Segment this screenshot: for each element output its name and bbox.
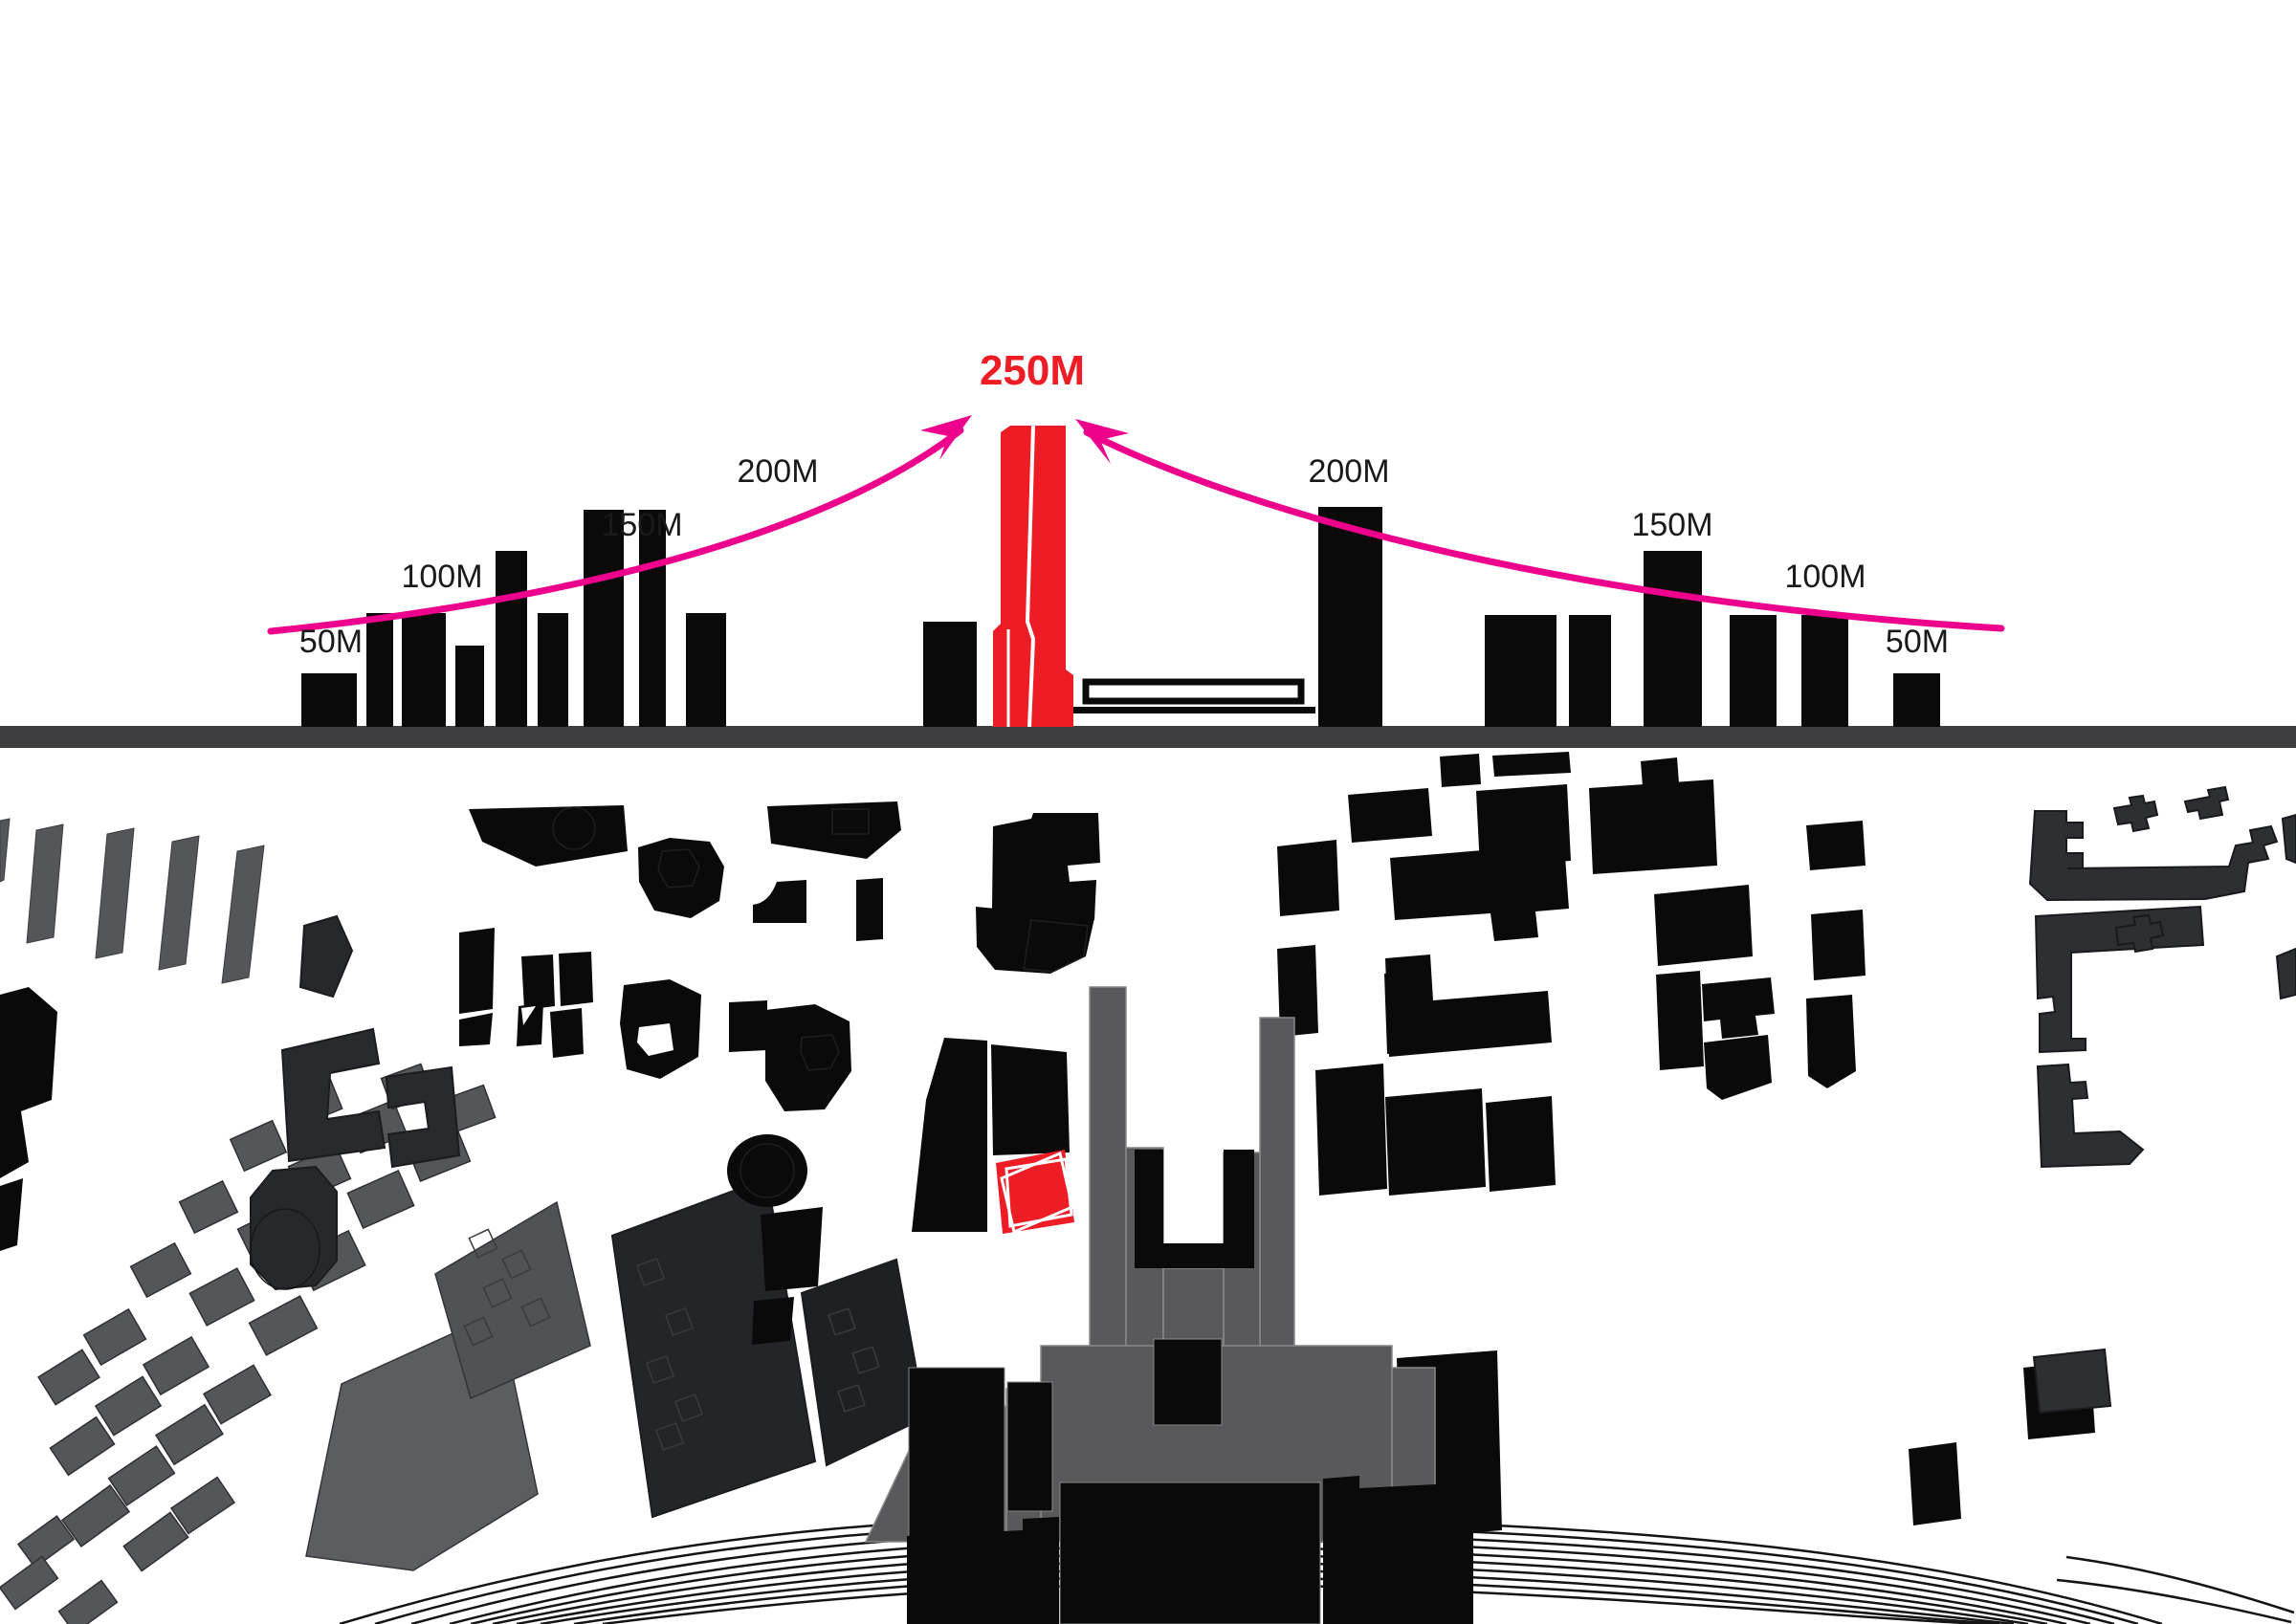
black-building-footprint bbox=[765, 1004, 851, 1111]
black-building-footprint bbox=[753, 880, 806, 923]
fan-house-block bbox=[84, 1309, 146, 1365]
skyline-building bbox=[686, 613, 726, 727]
black-building-footprint bbox=[752, 1297, 794, 1345]
fan-house-block bbox=[204, 1365, 271, 1423]
crenellated-perimeter-block bbox=[2038, 1064, 2143, 1167]
gray-bar-building bbox=[0, 819, 10, 882]
skyline-elevation-layer bbox=[301, 426, 1940, 727]
plaza-gray-surface bbox=[1260, 1018, 1294, 1360]
height-label-100m: 100M bbox=[401, 559, 482, 595]
black-building-footprint bbox=[1806, 821, 1865, 870]
black-building-footprint bbox=[992, 813, 1100, 920]
black-building-footprint bbox=[459, 928, 495, 1014]
black-building-footprint bbox=[1277, 840, 1339, 916]
crenellated-perimeter-block bbox=[2030, 811, 2277, 900]
height-label-150m: 150M bbox=[601, 507, 682, 543]
red-site-parcel-layer bbox=[996, 1150, 1074, 1234]
black-building-footprint bbox=[550, 1008, 584, 1058]
station-black-building bbox=[1323, 1476, 1473, 1624]
fan-house-block bbox=[250, 1296, 318, 1355]
fan-house-block bbox=[156, 1405, 223, 1464]
skyline-building bbox=[496, 551, 527, 727]
gray-bar-building bbox=[159, 836, 199, 970]
height-label-200m: 200M bbox=[737, 453, 818, 490]
crenellated-perimeter-block bbox=[2185, 787, 2228, 819]
skyline-building bbox=[1730, 615, 1777, 727]
black-building-footprint bbox=[912, 1038, 987, 1232]
black-building-footprint bbox=[469, 805, 628, 867]
station-black-building bbox=[1060, 1482, 1320, 1624]
black-building-footprint bbox=[1348, 788, 1432, 843]
fan-house-block bbox=[38, 1350, 99, 1404]
black-building-footprint bbox=[976, 907, 1094, 974]
black-building-footprint bbox=[1390, 844, 1569, 941]
skyline-building bbox=[1569, 615, 1611, 727]
fan-house-block bbox=[189, 1268, 254, 1326]
black-building-footprint bbox=[1589, 779, 1717, 874]
black-building-footprint bbox=[1704, 1035, 1772, 1100]
height-label-200m: 200M bbox=[1308, 453, 1389, 490]
ground-line bbox=[0, 726, 2296, 748]
black-building-footprint bbox=[991, 1044, 1070, 1155]
black-building-footprint bbox=[0, 987, 57, 1178]
black-round-building bbox=[727, 1134, 807, 1207]
black-building-footprint bbox=[1486, 1096, 1556, 1192]
black-building-footprint bbox=[559, 952, 593, 1006]
fan-house-block bbox=[231, 1121, 286, 1171]
skyline-building bbox=[923, 622, 977, 727]
skyline-building bbox=[455, 646, 484, 727]
crenellated-perimeter-block bbox=[2034, 1350, 2110, 1413]
fan-house-block bbox=[171, 1478, 234, 1534]
gray-bar-building bbox=[222, 845, 264, 983]
black-building-footprint bbox=[1909, 1442, 1961, 1525]
skyline-building bbox=[1893, 673, 1940, 727]
black-building-footprint bbox=[767, 801, 901, 859]
fan-house-block bbox=[123, 1512, 188, 1570]
fan-house-block bbox=[180, 1181, 238, 1233]
black-building-footprint bbox=[459, 1013, 493, 1046]
fan-house-block bbox=[96, 1376, 161, 1435]
skyline-building bbox=[301, 673, 357, 727]
height-label-150m: 150M bbox=[1631, 507, 1712, 543]
fan-house-block bbox=[131, 1243, 191, 1297]
black-building-footprint bbox=[1654, 885, 1753, 966]
low-podium-building bbox=[1086, 682, 1301, 701]
black-building-footprint bbox=[1806, 995, 1856, 1088]
skyline-building bbox=[1485, 615, 1556, 727]
plaza-gray-surface bbox=[1090, 987, 1126, 1360]
fan-house-block bbox=[143, 1337, 209, 1394]
black-building-footprint bbox=[1492, 752, 1571, 777]
gray-bar-building bbox=[96, 828, 134, 958]
skyline-building bbox=[366, 613, 393, 727]
station-black-building bbox=[1135, 1150, 1254, 1268]
black-building-footprint bbox=[0, 1178, 23, 1251]
height-label-50m: 50M bbox=[1886, 624, 1949, 660]
crenellated-perimeter-block bbox=[2283, 815, 2296, 863]
fan-house-block bbox=[0, 1557, 57, 1610]
black-building-footprint bbox=[729, 1000, 767, 1052]
height-label-100m: 100M bbox=[1784, 559, 1865, 595]
city-height-site-diagram: 50M100M150M200M250M200M150M100M50M bbox=[0, 0, 2296, 1624]
charcoal-building bbox=[251, 1167, 337, 1289]
charcoal-building bbox=[802, 1260, 925, 1465]
height-envelope-arrows-layer bbox=[271, 415, 2001, 631]
podium-base-line bbox=[1073, 707, 1315, 713]
crenellated-perimeter-block bbox=[2114, 796, 2157, 831]
fan-house-block bbox=[347, 1171, 413, 1228]
skyline-building bbox=[1644, 551, 1702, 727]
black-building-footprint bbox=[1440, 754, 1481, 787]
height-label-50m: 50M bbox=[299, 624, 363, 660]
gray-bar-building bbox=[27, 824, 63, 943]
skyline-building bbox=[402, 613, 446, 727]
height-envelope-curve-right bbox=[1087, 432, 2001, 628]
crenellated-perimeter-block bbox=[2277, 949, 2296, 999]
fan-house-block bbox=[50, 1417, 114, 1476]
black-building-footprint bbox=[521, 955, 555, 1010]
black-building-footprint bbox=[1315, 1064, 1387, 1196]
height-label-250m: 250M bbox=[980, 347, 1085, 394]
black-building-footprint bbox=[1702, 977, 1775, 1039]
station-black-building bbox=[1154, 1339, 1222, 1425]
station-black-building bbox=[909, 1368, 1004, 1542]
black-building-footprint bbox=[761, 1207, 823, 1291]
black-building-footprint bbox=[856, 878, 883, 941]
skyline-building bbox=[538, 613, 568, 727]
skyline-building bbox=[1318, 507, 1382, 727]
black-building-footprint bbox=[1385, 955, 1552, 1057]
fan-house-block bbox=[59, 1581, 118, 1624]
charcoal-building bbox=[300, 916, 352, 997]
black-building-footprint bbox=[1656, 971, 1704, 1070]
black-building-footprint bbox=[1385, 1088, 1486, 1196]
ground-line-layer bbox=[0, 726, 2296, 748]
diagram-page: 50M100M150M200M250M200M150M100M50M bbox=[0, 0, 2296, 1624]
black-building-footprint bbox=[1811, 910, 1865, 980]
skyline-building bbox=[1801, 615, 1848, 727]
station-black-building bbox=[1007, 1382, 1052, 1511]
